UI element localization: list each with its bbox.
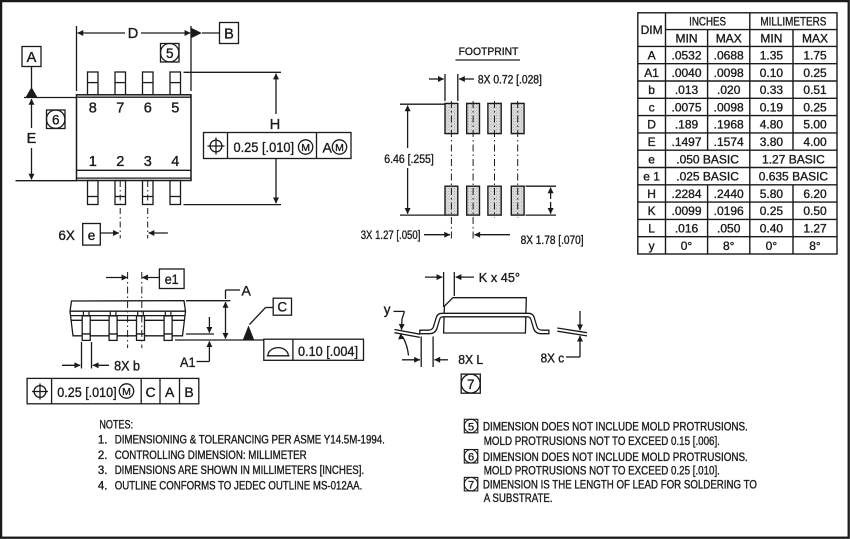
svg-text:MOLD PROTRUSIONS NOT TO EXCEED: MOLD PROTRUSIONS NOT TO EXCEED 0.25 [.01…	[484, 466, 720, 478]
svg-text:.2284: .2284	[671, 187, 701, 201]
svg-text:.050 BASIC: .050 BASIC	[676, 152, 739, 166]
svg-text:C: C	[277, 300, 287, 315]
svg-text:4.: 4.	[98, 481, 108, 493]
svg-text:C: C	[146, 384, 156, 400]
svg-text:.0099: .0099	[671, 204, 701, 218]
svg-text:4.00: 4.00	[803, 135, 827, 149]
svg-text:1.27 BASIC: 1.27 BASIC	[762, 152, 825, 166]
svg-text:6: 6	[468, 452, 474, 464]
svg-text:.050: .050	[717, 222, 741, 236]
svg-text:8X b: 8X b	[114, 358, 140, 373]
svg-text:.2440: .2440	[714, 187, 744, 201]
svg-text:INCHES: INCHES	[689, 15, 726, 29]
svg-text:5.00: 5.00	[803, 118, 827, 132]
svg-text:H: H	[270, 117, 280, 133]
svg-text:6.20: 6.20	[803, 187, 827, 201]
svg-text:A1: A1	[644, 66, 659, 80]
svg-text:0.50: 0.50	[803, 204, 827, 218]
svg-text:M: M	[335, 142, 344, 154]
svg-text:y: y	[384, 302, 391, 317]
svg-text:DIMENSION DOES NOT INCLUDE MOL: DIMENSION DOES NOT INCLUDE MOLD PROTRUSI…	[483, 452, 748, 464]
svg-text:D: D	[647, 118, 656, 132]
svg-text:.0532: .0532	[671, 49, 701, 63]
svg-text:A: A	[648, 49, 656, 63]
svg-text:.0688: .0688	[714, 49, 744, 63]
svg-text:.1497: .1497	[671, 135, 701, 149]
svg-text:7: 7	[116, 101, 124, 117]
svg-text:0.33: 0.33	[760, 83, 784, 97]
svg-text:3.: 3.	[98, 465, 108, 477]
svg-text:NOTES:: NOTES:	[99, 420, 133, 432]
svg-text:0.25: 0.25	[760, 204, 784, 218]
svg-text:1: 1	[89, 154, 97, 170]
svg-text:DIMENSIONING & TOLERANCING PER: DIMENSIONING & TOLERANCING PER ASME Y14.…	[115, 434, 385, 446]
svg-text:8°: 8°	[723, 239, 735, 253]
svg-text:DIMENSION IS THE LENGTH OF LEA: DIMENSION IS THE LENGTH OF LEAD FOR SOLD…	[483, 480, 757, 492]
svg-text:3X 1.27 [.050]: 3X 1.27 [.050]	[361, 230, 421, 242]
svg-text:L: L	[648, 222, 655, 236]
svg-text:8: 8	[89, 101, 97, 117]
svg-text:8X L: 8X L	[458, 352, 483, 367]
svg-text:y: y	[649, 239, 655, 253]
svg-text:MILLIMETERS: MILLIMETERS	[760, 15, 826, 29]
svg-text:MAX: MAX	[716, 32, 742, 46]
svg-text:0°: 0°	[681, 239, 693, 253]
svg-text:b: b	[648, 83, 655, 97]
svg-text:7: 7	[467, 377, 475, 392]
svg-text:DIMENSIONS ARE SHOWN IN MILLIM: DIMENSIONS ARE SHOWN IN MILLIMETERS [INC…	[115, 465, 364, 477]
svg-text:e: e	[88, 228, 96, 243]
svg-text:.1574: .1574	[714, 135, 744, 149]
svg-text:A: A	[242, 282, 252, 298]
svg-text:e: e	[648, 152, 655, 166]
svg-text:5: 5	[171, 101, 179, 117]
svg-text:8X 1.78 [.070]: 8X 1.78 [.070]	[521, 235, 584, 247]
svg-text:0.25 [.010]: 0.25 [.010]	[234, 139, 295, 155]
svg-text:A1: A1	[180, 354, 196, 370]
svg-text:0.635 BASIC: 0.635 BASIC	[759, 170, 829, 184]
svg-text:OUTLINE CONFORMS TO JEDEC OUTL: OUTLINE CONFORMS TO JEDEC OUTLINE MS-012…	[115, 481, 363, 493]
svg-text:.0098: .0098	[714, 100, 744, 114]
svg-text:7: 7	[468, 479, 474, 491]
svg-text:M: M	[301, 142, 310, 154]
svg-text:0.51: 0.51	[803, 83, 827, 97]
svg-text:K x 45°: K x 45°	[479, 270, 520, 285]
svg-text:A: A	[165, 384, 175, 400]
svg-text:2: 2	[116, 154, 124, 170]
svg-text:8°: 8°	[809, 239, 821, 253]
svg-text:e1: e1	[165, 272, 179, 287]
svg-text:A SUBSTRATE.: A SUBSTRATE.	[484, 493, 553, 505]
svg-text:.0075: .0075	[671, 100, 701, 114]
svg-text:1.27: 1.27	[803, 222, 827, 236]
svg-text:.016: .016	[675, 222, 699, 236]
svg-text:3.80: 3.80	[760, 135, 784, 149]
svg-text:.020: .020	[717, 83, 741, 97]
svg-text:0.10: 0.10	[760, 66, 784, 80]
svg-text:.0098: .0098	[714, 66, 744, 80]
svg-text:0.19: 0.19	[760, 100, 784, 114]
svg-text:.1968: .1968	[714, 118, 744, 132]
svg-text:e 1: e 1	[643, 170, 660, 184]
svg-text:MAX: MAX	[802, 32, 828, 46]
svg-text:c: c	[649, 100, 655, 114]
svg-text:.0040: .0040	[671, 66, 701, 80]
svg-text:A: A	[27, 50, 37, 66]
svg-text:DIMENSION DOES NOT INCLUDE MOL: DIMENSION DOES NOT INCLUDE MOLD PROTRUSI…	[483, 421, 748, 433]
svg-text:0.25: 0.25	[803, 100, 827, 114]
svg-text:CONTROLLING DIMENSION: MILLIME: CONTROLLING DIMENSION: MILLIMETER	[115, 450, 307, 462]
svg-text:0.25: 0.25	[803, 66, 827, 80]
svg-text:DIM: DIM	[641, 23, 663, 37]
svg-text:2.: 2.	[98, 450, 108, 462]
svg-text:B: B	[224, 27, 234, 43]
svg-text:MIN: MIN	[676, 32, 698, 46]
svg-text:FOOTPRINT: FOOTPRINT	[459, 46, 519, 58]
svg-text:0.25 [.010]: 0.25 [.010]	[57, 384, 116, 400]
svg-text:M: M	[122, 386, 131, 398]
svg-text:MOLD PROTRUSIONS NOT TO EXCEED: MOLD PROTRUSIONS NOT TO EXCEED 0.15 [.00…	[484, 436, 720, 448]
svg-text:.189: .189	[675, 118, 699, 132]
svg-text:.0196: .0196	[714, 204, 744, 218]
svg-text:1.75: 1.75	[803, 49, 827, 63]
svg-text:3: 3	[144, 154, 152, 170]
svg-text:B: B	[184, 384, 193, 400]
svg-text:6X: 6X	[58, 228, 75, 243]
svg-text:A: A	[323, 139, 333, 155]
svg-text:.013: .013	[675, 83, 699, 97]
svg-text:1.35: 1.35	[760, 49, 784, 63]
svg-text:6: 6	[52, 113, 60, 128]
svg-text:4: 4	[171, 154, 179, 170]
svg-text:0.40: 0.40	[760, 222, 784, 236]
svg-text:K: K	[648, 204, 656, 218]
svg-text:5: 5	[166, 46, 174, 61]
svg-text:5: 5	[468, 421, 474, 433]
svg-text:.025 BASIC: .025 BASIC	[676, 170, 739, 184]
svg-text:MIN: MIN	[760, 32, 782, 46]
svg-text:H: H	[647, 187, 656, 201]
svg-text:8X 0.72 [.028]: 8X 0.72 [.028]	[478, 75, 542, 87]
svg-text:1.: 1.	[98, 434, 108, 446]
svg-text:E: E	[27, 131, 37, 147]
svg-text:4.80: 4.80	[760, 118, 784, 132]
svg-text:0.10 [.004]: 0.10 [.004]	[298, 343, 358, 359]
svg-text:8X c: 8X c	[541, 351, 565, 366]
svg-text:0°: 0°	[766, 239, 778, 253]
svg-text:6.46 [.255]: 6.46 [.255]	[384, 154, 434, 166]
svg-text:E: E	[648, 135, 656, 149]
svg-text:D: D	[128, 26, 138, 42]
svg-text:6: 6	[144, 101, 152, 117]
svg-text:5.80: 5.80	[760, 187, 784, 201]
